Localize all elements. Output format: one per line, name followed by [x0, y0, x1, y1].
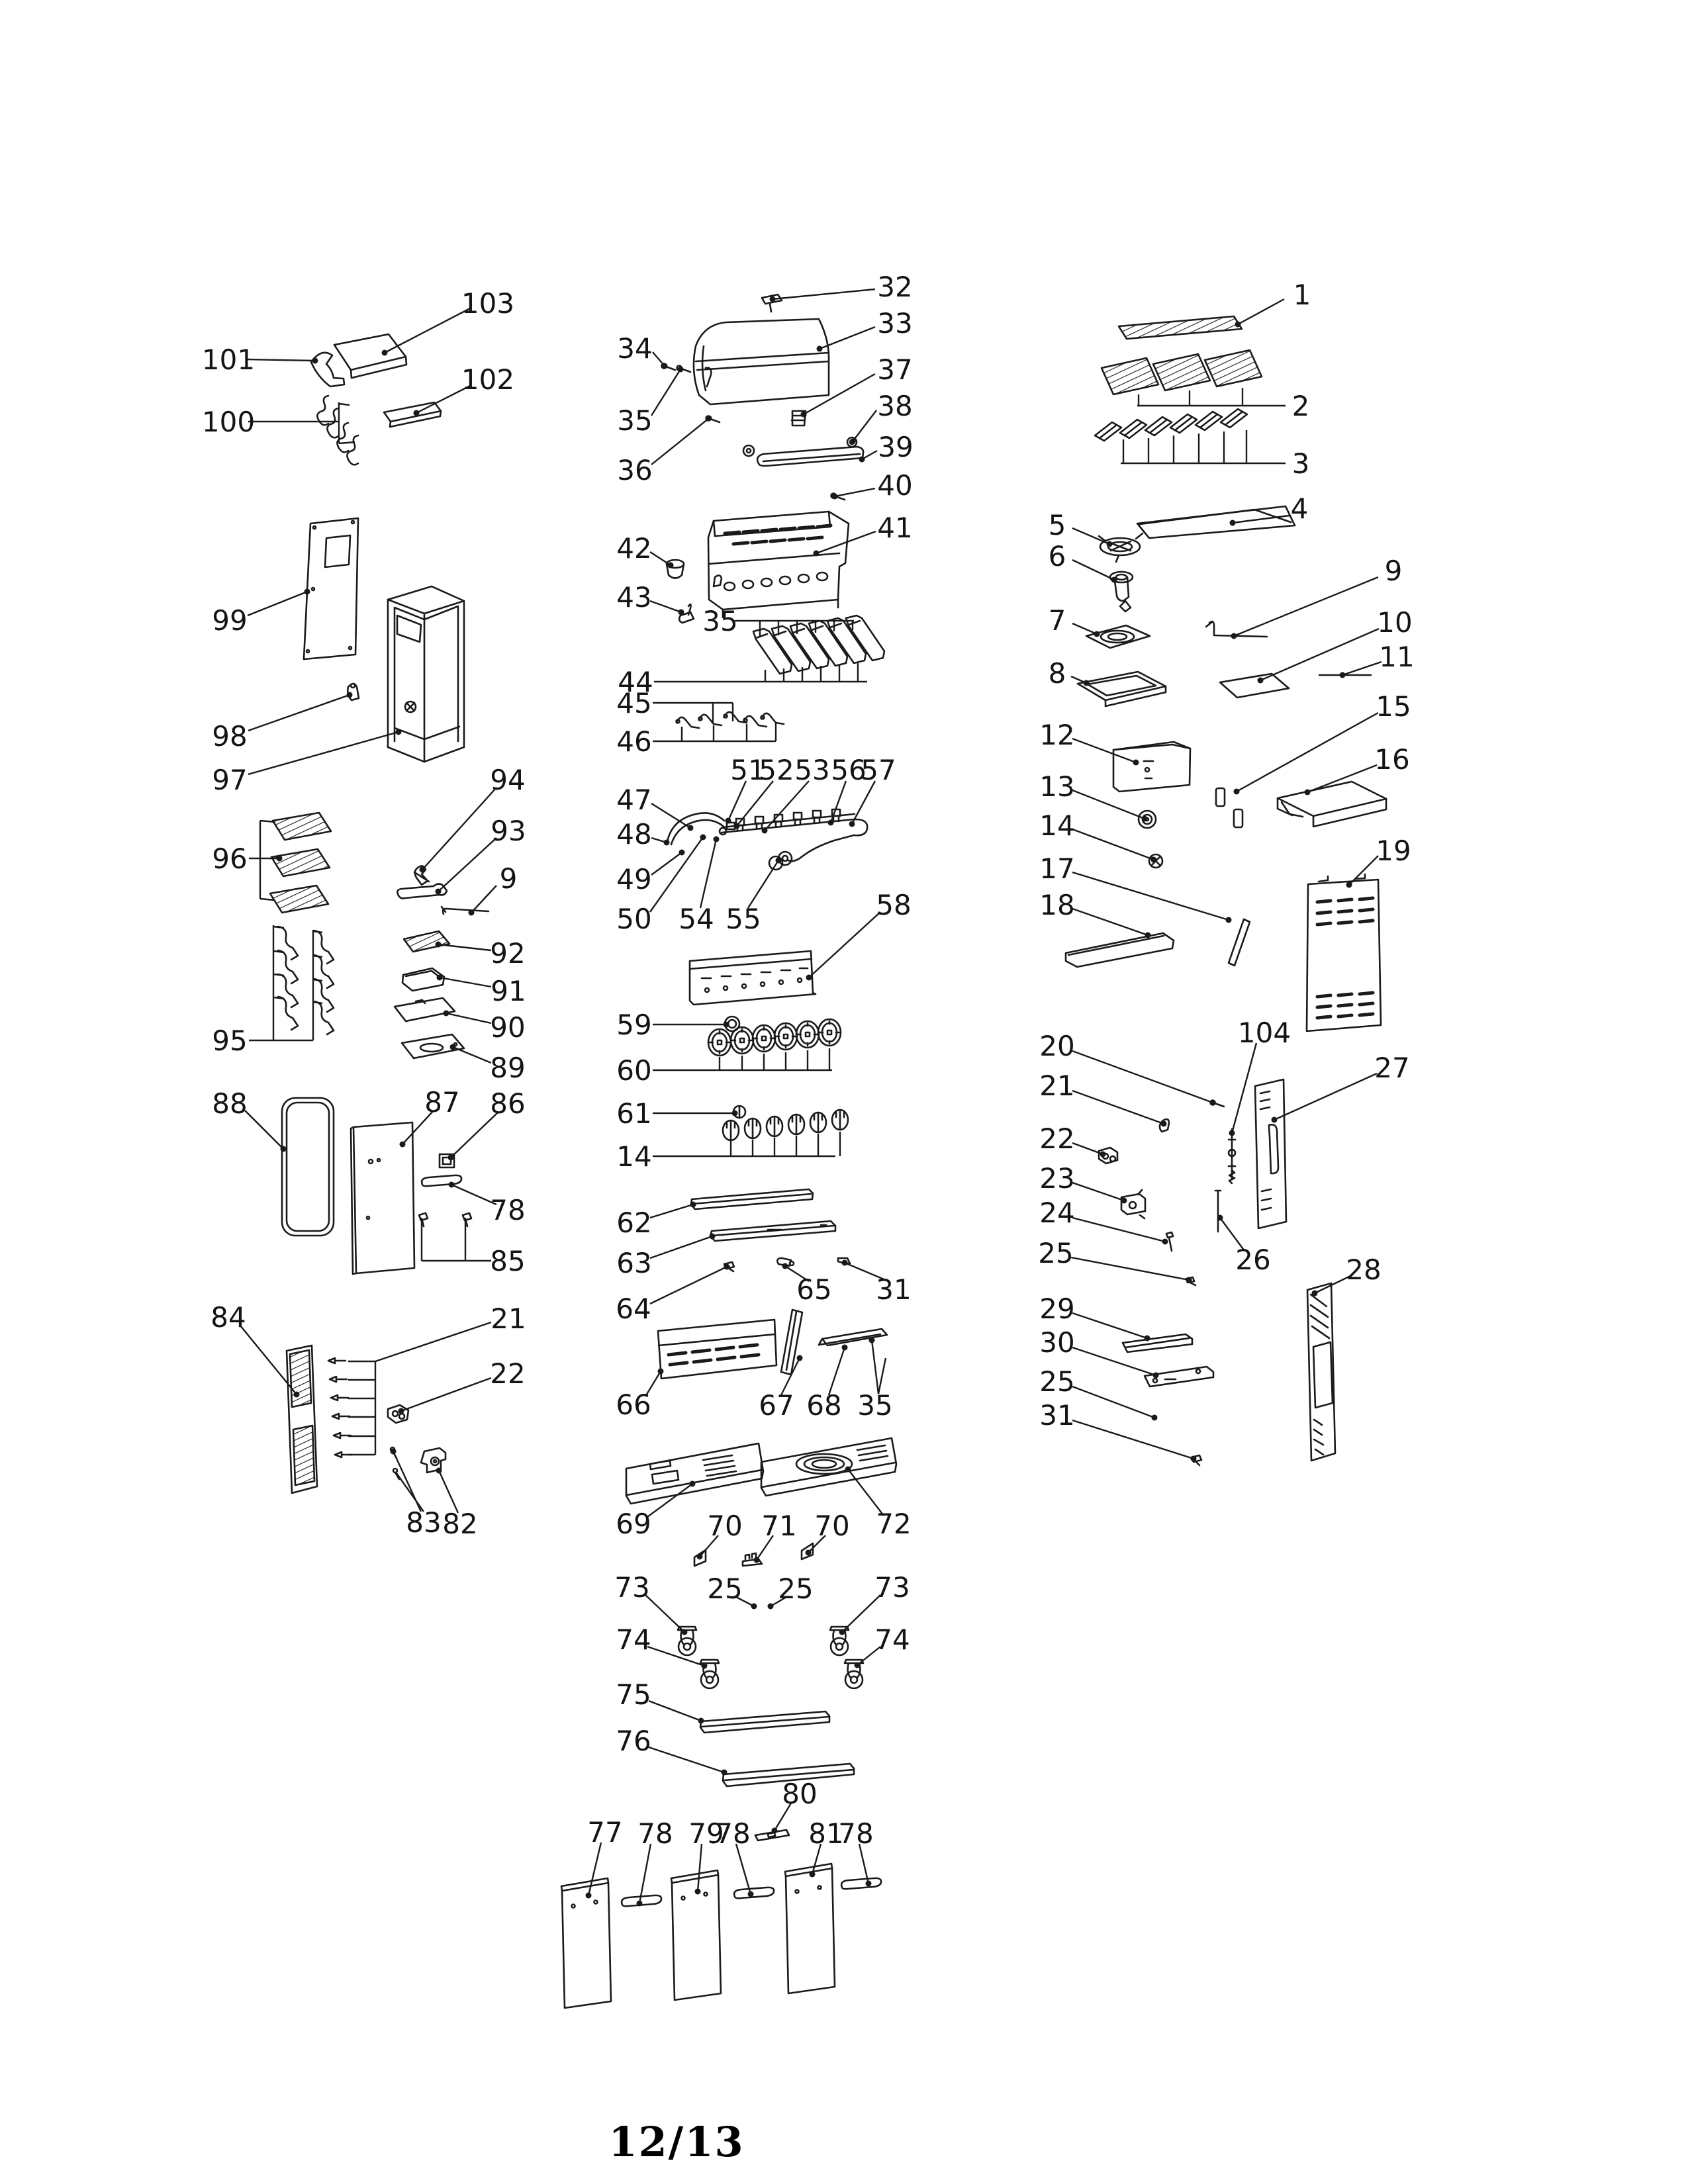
- part-81-door: [785, 1864, 835, 1993]
- leader-dot-37: [801, 412, 807, 418]
- leader-dot-78: [866, 1881, 872, 1887]
- leader-dot-103: [382, 350, 388, 356]
- leader-dot-12: [1133, 760, 1139, 766]
- part-77-door: [561, 1878, 611, 2008]
- part-label-75: 75: [616, 1678, 651, 1711]
- leader-line-91: [440, 978, 491, 987]
- part-label-35: 35: [702, 605, 737, 637]
- part-label-62: 62: [616, 1206, 651, 1239]
- part-label-6: 6: [1049, 540, 1066, 572]
- part-27-side-panel: [1255, 1079, 1286, 1228]
- leader-line-6: [1072, 560, 1114, 580]
- leader-line-79: [698, 1844, 702, 1891]
- part-26-rod: [1215, 1191, 1221, 1232]
- leader-dot-49: [679, 850, 685, 856]
- part-label-3: 3: [1292, 447, 1310, 480]
- leader-line-7: [1072, 623, 1097, 634]
- part-104-rod-spring: [1229, 1129, 1235, 1183]
- part-label-100: 100: [202, 406, 255, 438]
- part-78-handle-2: [734, 1888, 774, 1898]
- leader-line-93: [438, 838, 496, 891]
- part-label-70: 70: [707, 1510, 742, 1542]
- leader-line-103: [385, 308, 470, 353]
- leader-dot-61: [732, 1111, 738, 1116]
- part-label-52: 52: [759, 754, 794, 786]
- leader-dot-25: [1152, 1415, 1158, 1421]
- leader-dot-9: [469, 910, 475, 916]
- part-label-60: 60: [616, 1054, 651, 1087]
- page-number: 12/13: [604, 2118, 749, 2166]
- part-label-74: 74: [874, 1623, 910, 1656]
- leader-dot-17: [1226, 917, 1232, 923]
- leader-dot-28: [1312, 1291, 1318, 1297]
- leader-line-32: [773, 289, 875, 299]
- leader-line-95: [313, 1002, 322, 1003]
- leader-dot-20: [1210, 1100, 1216, 1106]
- part-69-bottom-tray: [626, 1443, 763, 1504]
- leader-line-68: [829, 1347, 845, 1395]
- leader-lines-layer: [240, 289, 1382, 1907]
- part-4-grease-tray: [1137, 506, 1295, 538]
- leader-dot-18: [1145, 933, 1151, 938]
- leader-dot-89: [450, 1044, 456, 1050]
- leader-dot-91: [437, 975, 443, 981]
- leader-line-29: [1072, 1313, 1147, 1338]
- leader-dot-77: [586, 1893, 592, 1899]
- leader-line-42: [650, 552, 671, 565]
- leader-dot-30: [1153, 1373, 1159, 1379]
- leader-dot-1: [1235, 322, 1241, 328]
- part-70-brackets: [694, 1543, 813, 1566]
- leader-dot-88: [281, 1146, 287, 1152]
- part-label-102: 102: [461, 363, 514, 396]
- leader-line-84: [240, 1326, 297, 1394]
- part-label-93: 93: [491, 815, 526, 847]
- leader-dot-69: [690, 1481, 696, 1487]
- leader-line-15: [1237, 713, 1378, 792]
- leader-dot-79: [695, 1889, 701, 1895]
- leader-line-89: [453, 1047, 491, 1063]
- part-label-17: 17: [1039, 852, 1074, 885]
- part-16-shelf: [1278, 782, 1386, 827]
- part-label-71: 71: [761, 1510, 796, 1542]
- part-label-34: 34: [617, 332, 652, 365]
- part-label-25: 25: [1038, 1237, 1073, 1269]
- leader-line-78: [639, 1844, 651, 1903]
- leader-dot-58: [806, 975, 812, 981]
- leader-dot-36: [706, 416, 712, 422]
- leader-line-9: [471, 886, 496, 913]
- part-label-58: 58: [876, 889, 911, 921]
- leader-line-54: [700, 839, 716, 908]
- leader-line-88: [245, 1111, 283, 1149]
- leader-dot-101: [312, 358, 318, 364]
- leader-line-100: [339, 404, 350, 405]
- part-label-55: 55: [726, 903, 761, 935]
- leader-line-22: [1072, 1143, 1103, 1154]
- part-9-rod-left: [442, 907, 489, 914]
- leader-line-28: [1315, 1276, 1350, 1293]
- leader-dot-71: [754, 1557, 760, 1563]
- part-label-63: 63: [616, 1247, 651, 1279]
- leader-dot-50: [700, 835, 706, 841]
- part-68-shelf-small: [819, 1329, 887, 1345]
- part-label-68: 68: [806, 1389, 841, 1422]
- leader-line-95: [273, 974, 284, 976]
- part-label-13: 13: [1039, 770, 1074, 803]
- part-label-99: 99: [212, 604, 247, 637]
- part-label-14: 14: [616, 1140, 651, 1173]
- leader-line-9: [1234, 577, 1378, 636]
- part-label-90: 90: [490, 1011, 525, 1044]
- part-label-78: 78: [637, 1817, 673, 1850]
- leader-line-95: [273, 927, 284, 928]
- leader-dot-24: [1162, 1239, 1168, 1245]
- manifold-assembly: [667, 809, 867, 870]
- part-label-25: 25: [707, 1572, 742, 1605]
- part-22-valve-left: [388, 1405, 408, 1423]
- leader-dot-29: [1145, 1336, 1150, 1342]
- part-10-panel: [1220, 674, 1289, 698]
- part-label-2: 2: [1292, 390, 1310, 422]
- leader-line-20: [1072, 1051, 1213, 1103]
- leader-dot-27: [1272, 1117, 1278, 1123]
- casters: [678, 1627, 863, 1688]
- leader-dot-47: [688, 825, 694, 831]
- part-label-85: 85: [490, 1245, 525, 1277]
- leader-dot-90: [444, 1011, 449, 1017]
- leader-line-104: [1232, 1043, 1256, 1133]
- leader-line-11: [1342, 662, 1382, 675]
- part-label-47: 47: [616, 784, 651, 816]
- leader-dot-97: [396, 729, 402, 735]
- part-label-50: 50: [616, 903, 651, 935]
- part-label-61: 61: [616, 1097, 651, 1130]
- leader-dot-56: [828, 820, 834, 826]
- part-33-lid: [694, 319, 829, 404]
- leader-line-95: [313, 956, 322, 957]
- part-41-firebox: [708, 512, 849, 617]
- leader-dot-48: [664, 840, 670, 846]
- part-label-9: 9: [1385, 555, 1403, 587]
- part-label-48: 48: [616, 818, 651, 850]
- leader-line-101: [247, 359, 315, 361]
- leader-dot-35: [869, 1338, 875, 1343]
- part-28-side-panel: [1307, 1283, 1335, 1461]
- leader-dot-31: [842, 1260, 848, 1266]
- part-label-94: 94: [490, 764, 525, 796]
- part-label-22: 22: [1039, 1122, 1074, 1155]
- leader-dot-80: [772, 1828, 778, 1834]
- leader-line-53: [765, 781, 809, 831]
- part-95-hooks: [278, 927, 334, 1034]
- part-39-lid-handle: [757, 447, 863, 466]
- part-label-26: 26: [1235, 1244, 1270, 1276]
- part-82-bracket: [421, 1448, 445, 1473]
- leader-dot-7: [1094, 631, 1100, 637]
- leader-line-76: [649, 1747, 724, 1772]
- leader-dot-68: [842, 1345, 848, 1351]
- part-label-91: 91: [491, 975, 526, 1007]
- part-label-87: 87: [424, 1086, 459, 1118]
- part-label-70: 70: [814, 1510, 849, 1542]
- leader-dot-66: [658, 1369, 664, 1375]
- leader-dot-16: [1305, 790, 1311, 796]
- leader-dot-4: [1230, 520, 1236, 526]
- leader-dot-13: [1142, 816, 1148, 822]
- part-2-cooking-grates: [1102, 350, 1262, 394]
- part-label-35: 35: [617, 404, 652, 437]
- leader-dot-26: [1217, 1215, 1223, 1221]
- part-97-cart-body: [388, 586, 464, 762]
- leader-line-55: [748, 860, 778, 908]
- leader-line-43: [650, 601, 681, 612]
- part-label-33: 33: [877, 307, 912, 340]
- part-103-shelf: [334, 334, 406, 378]
- part-17-rod: [1229, 919, 1250, 966]
- leader-dot-14: [1151, 857, 1157, 863]
- leader-line-99: [248, 592, 307, 615]
- leader-dot-96: [277, 856, 283, 862]
- part-label-10: 10: [1377, 606, 1412, 639]
- part-label-64: 64: [616, 1293, 651, 1325]
- leader-dot-54: [714, 837, 720, 842]
- part-label-20: 20: [1039, 1030, 1074, 1062]
- part-label-96: 96: [212, 842, 247, 875]
- leader-dot-35: [678, 367, 684, 373]
- leader-line-69: [647, 1484, 692, 1517]
- part-label-76: 76: [616, 1725, 651, 1757]
- leader-dot-63: [710, 1234, 716, 1240]
- leader-dot-59: [724, 1022, 729, 1028]
- leader-line-17: [1072, 872, 1229, 920]
- part-label-39: 39: [878, 431, 913, 463]
- leader-line-82: [439, 1471, 458, 1513]
- part-label-59: 59: [616, 1009, 651, 1041]
- leader-dot-53: [762, 828, 768, 834]
- part-label-22: 22: [490, 1357, 525, 1390]
- leader-dot-55: [776, 858, 782, 864]
- part-label-67: 67: [759, 1389, 794, 1422]
- leader-dot-25: [1186, 1277, 1192, 1283]
- leader-dot-75: [698, 1718, 704, 1724]
- leader-line-50: [650, 837, 703, 912]
- part-5-burner-ring: [1099, 533, 1143, 562]
- part-label-103: 103: [461, 287, 514, 320]
- part-92-grate-small: [404, 931, 449, 952]
- part-label-92: 92: [490, 937, 525, 970]
- leader-dot-94: [420, 867, 426, 873]
- leader-dot-25: [751, 1604, 757, 1610]
- leader-dot-102: [414, 410, 420, 416]
- parts-artwork: [270, 295, 1386, 2008]
- leader-line-78: [736, 1844, 751, 1894]
- leader-line-14: [1072, 829, 1154, 860]
- part-label-80: 80: [782, 1778, 817, 1810]
- leader-dot-57: [849, 821, 855, 827]
- part-label-41: 41: [877, 512, 912, 544]
- part-label-65: 65: [796, 1273, 831, 1306]
- leader-line-40: [835, 488, 875, 496]
- part-label-14: 14: [1039, 809, 1074, 842]
- part-15-spacers: [1216, 788, 1243, 827]
- leader-line-25: [1072, 1387, 1154, 1418]
- leader-line-1: [1238, 299, 1284, 324]
- leader-dot-87: [400, 1142, 406, 1148]
- part-label-83: 83: [406, 1506, 441, 1539]
- part-label-104: 104: [1238, 1017, 1291, 1049]
- leader-line-31: [1072, 1420, 1194, 1459]
- part-58-control-panel: [690, 951, 816, 1005]
- part-label-84: 84: [211, 1301, 246, 1334]
- leader-dot-92: [436, 942, 442, 948]
- part-label-46: 46: [616, 725, 651, 758]
- leader-dot-72: [845, 1467, 851, 1473]
- part-label-9: 9: [500, 862, 518, 895]
- part-label-12: 12: [1039, 719, 1074, 751]
- part-72-bottom-tray-ring: [761, 1438, 896, 1496]
- leader-line-35: [872, 1340, 878, 1394]
- burner-tubes: [753, 615, 884, 674]
- leader-line-95: [313, 931, 322, 933]
- leader-line-22: [401, 1378, 491, 1411]
- part-label-98: 98: [212, 720, 247, 752]
- leader-dot-78: [637, 1901, 643, 1907]
- part-label-66: 66: [616, 1388, 651, 1421]
- leader-line-62: [650, 1205, 693, 1218]
- part-label-8: 8: [1049, 657, 1066, 690]
- leader-dot-21: [1161, 1121, 1167, 1127]
- part-78-handle-door: [422, 1175, 461, 1186]
- part-label-101: 101: [202, 343, 255, 376]
- part-label-53: 53: [794, 754, 829, 786]
- leader-dot-70: [806, 1550, 812, 1556]
- part-label-74: 74: [616, 1623, 651, 1656]
- leader-dot-99: [305, 589, 310, 595]
- part-90-plate: [395, 998, 455, 1021]
- leader-dot-8: [1084, 680, 1090, 686]
- part-label-28: 28: [1346, 1253, 1381, 1286]
- part-19-back-panel: [1307, 874, 1381, 1031]
- diagram-page: 1031011001023233343536373839401234567891…: [0, 0, 1688, 2184]
- leader-line-21: [375, 1322, 491, 1361]
- leader-line-57: [852, 781, 875, 824]
- leader-line-47: [651, 803, 690, 828]
- leader-line-5: [1072, 528, 1109, 544]
- leader-line-13: [1072, 790, 1145, 819]
- part-label-11: 11: [1379, 641, 1414, 673]
- part-label-89: 89: [490, 1052, 525, 1084]
- part-label-72: 72: [876, 1508, 911, 1540]
- part-label-23: 23: [1039, 1162, 1074, 1195]
- part-63-trim-bar: [710, 1221, 835, 1241]
- leader-line-24: [1072, 1218, 1165, 1242]
- part-75-cross-bar: [700, 1711, 829, 1733]
- leader-line-38: [853, 410, 876, 441]
- leader-line-37: [804, 374, 875, 414]
- lid-washer: [743, 445, 754, 456]
- leader-dot-42: [668, 563, 674, 569]
- part-label-27: 27: [1374, 1052, 1409, 1084]
- leader-line-75: [649, 1701, 701, 1721]
- leader-dot-78: [748, 1891, 754, 1897]
- part-label-1: 1: [1293, 279, 1311, 311]
- part-label-43: 43: [616, 581, 651, 614]
- leader-line-73: [645, 1595, 684, 1632]
- part-label-73: 73: [614, 1571, 649, 1604]
- leader-dot-74: [702, 1663, 708, 1669]
- part-78-handle-3: [841, 1878, 881, 1889]
- leader-line-35: [651, 369, 680, 416]
- leader-dot-6: [1111, 577, 1117, 583]
- leader-dot-31: [1191, 1456, 1197, 1462]
- leader-line-90: [446, 1013, 491, 1023]
- leader-line-77: [588, 1843, 601, 1895]
- part-96-grates: [270, 813, 331, 913]
- leader-line-49: [651, 852, 682, 875]
- leader-dot-98: [347, 692, 353, 698]
- leader-dot-83: [391, 1449, 397, 1455]
- leader-line-10: [1260, 629, 1379, 680]
- part-label-36: 36: [617, 454, 652, 486]
- leader-line-27: [1274, 1073, 1377, 1120]
- leader-line-23: [1072, 1183, 1124, 1201]
- part-label-16: 16: [1374, 743, 1409, 776]
- leader-dot-73: [682, 1629, 688, 1635]
- part-label-29: 29: [1039, 1293, 1074, 1325]
- part-84-side-panel: [287, 1345, 317, 1493]
- leader-line-30: [1072, 1347, 1156, 1375]
- part-label-78: 78: [838, 1817, 873, 1850]
- part-label-15: 15: [1376, 690, 1411, 723]
- leader-line-35: [878, 1358, 886, 1394]
- part-label-57: 57: [861, 754, 896, 786]
- part-label-35: 35: [857, 1389, 892, 1422]
- part-label-77: 77: [587, 1816, 622, 1848]
- leader-dot-52: [734, 823, 740, 829]
- leader-dot-74: [855, 1662, 861, 1668]
- leader-line-97: [248, 732, 399, 774]
- leader-line-21: [1072, 1091, 1164, 1124]
- part-label-21: 21: [1039, 1069, 1074, 1102]
- leader-dot-64: [724, 1264, 730, 1270]
- part-67-strip: [781, 1310, 802, 1375]
- leader-dot-73: [839, 1629, 845, 1635]
- leader-line-92: [438, 944, 491, 950]
- leader-dot-41: [814, 551, 820, 557]
- part-21-screws-column: [328, 1358, 352, 1457]
- leader-dot-23: [1121, 1198, 1127, 1204]
- leader-line-58: [809, 912, 880, 978]
- leader-dot-32: [770, 296, 776, 302]
- leader-line-33: [820, 327, 875, 349]
- part-label-95: 95: [212, 1024, 247, 1057]
- part-label-78: 78: [715, 1817, 750, 1850]
- leader-line-64: [650, 1267, 727, 1304]
- leader-dot-22: [1100, 1152, 1106, 1158]
- leader-dot-76: [722, 1770, 727, 1776]
- part-label-73: 73: [874, 1571, 910, 1604]
- part-label-25: 25: [778, 1572, 813, 1605]
- leader-line-98: [248, 695, 350, 731]
- part-label-25: 25: [1039, 1365, 1074, 1398]
- leader-line-96: [260, 899, 274, 900]
- part-66-back-panel-lower: [658, 1320, 776, 1379]
- part-label-69: 69: [616, 1508, 651, 1540]
- part-18-drip-tray: [1066, 933, 1174, 967]
- leader-dot-40: [832, 494, 838, 500]
- part-label-31: 31: [876, 1273, 911, 1306]
